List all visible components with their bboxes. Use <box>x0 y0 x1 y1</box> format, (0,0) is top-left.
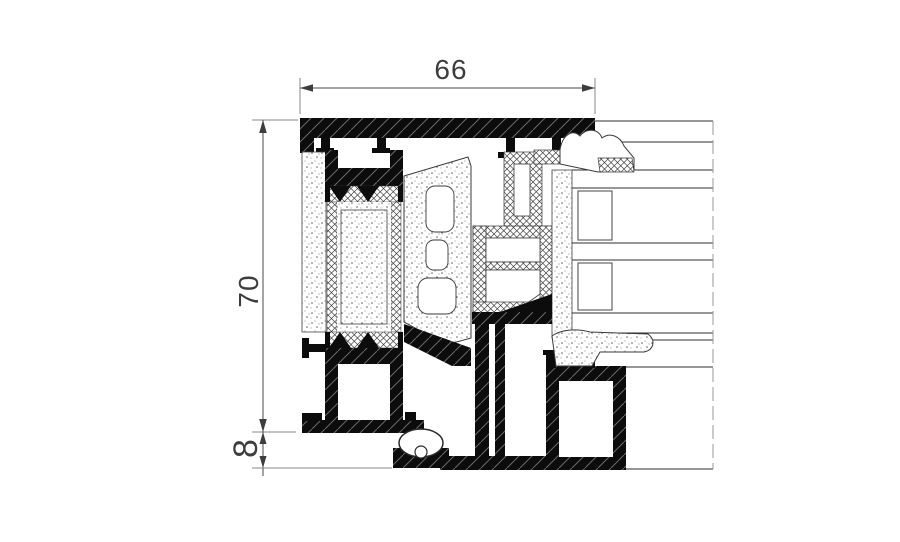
top-bar-tab-foot <box>372 148 390 153</box>
arrowhead <box>259 120 267 133</box>
sash-frame-cavity <box>486 238 540 262</box>
glass-spacer-bar <box>578 191 612 240</box>
sash-bottom-bar <box>472 312 552 324</box>
insulator-cavity <box>418 278 456 314</box>
bottom-post <box>495 324 505 470</box>
gasket-arm-slot <box>514 164 530 216</box>
arrowhead <box>300 84 313 92</box>
frame-band <box>325 348 403 364</box>
glazing-backer-strip <box>552 170 572 338</box>
sash-frame-wall <box>473 226 486 312</box>
frame-bottom-step <box>302 413 322 421</box>
bottom-glazing-gasket <box>552 330 653 366</box>
top-bar <box>300 118 595 138</box>
frame-band <box>325 168 403 186</box>
frame-bottom-tab <box>405 412 416 421</box>
frame-side-tab <box>308 344 326 352</box>
top-bar-tab <box>506 138 515 154</box>
bottom-post <box>475 324 489 470</box>
arrowhead <box>259 419 267 432</box>
insulator-cavity <box>426 240 448 270</box>
thermal-break-wall <box>327 202 337 332</box>
dimension-width: 66 <box>300 54 595 114</box>
arrowhead <box>582 84 595 92</box>
sash-frame-cavity <box>486 270 540 304</box>
sash-frame-midband <box>486 262 540 270</box>
foam-strip <box>302 152 326 332</box>
middle-sash-insulator <box>404 157 471 366</box>
profile-cross-section-drawing: 66 70 8 <box>0 0 900 542</box>
technical-drawing-canvas: 66 70 8 <box>0 0 900 542</box>
insulation-core <box>337 202 391 332</box>
dimension-offset-label: 8 <box>227 438 265 458</box>
sill-box-cavity <box>559 381 613 457</box>
glass-spacer-bar <box>578 263 612 310</box>
dimension-height: 70 <box>233 120 298 432</box>
frame-stub <box>325 186 330 202</box>
frame-stub <box>398 332 403 348</box>
top-bar-left-cap <box>300 138 314 153</box>
insulator-cavity <box>426 186 454 232</box>
frame-stub <box>398 186 403 202</box>
dimension-offset: 8 <box>227 432 392 476</box>
thermal-break-wall <box>391 202 401 332</box>
bubble-gasket-core <box>415 446 427 458</box>
frame-side-tab-cap <box>302 338 309 358</box>
dimension-width-label: 66 <box>434 54 467 85</box>
outer-gasket-tip <box>598 158 634 172</box>
frame-bottom-bar <box>302 420 424 433</box>
dimension-height-label: 70 <box>233 274 264 307</box>
